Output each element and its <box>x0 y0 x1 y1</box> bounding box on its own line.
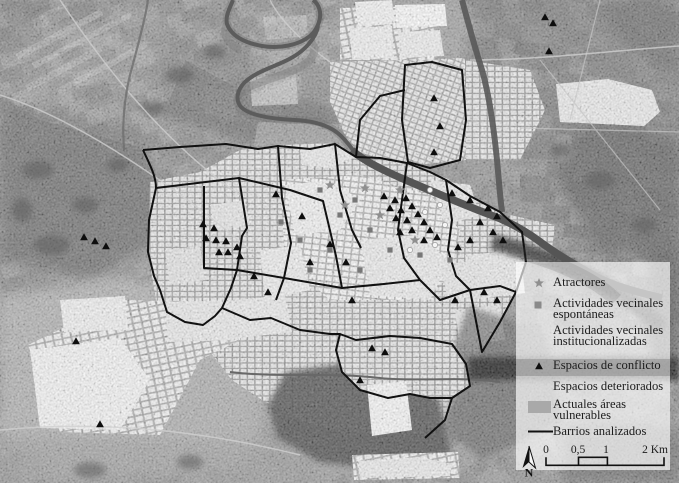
svg-text:0: 0 <box>543 444 549 456</box>
svg-text:espontáneas: espontáneas <box>553 307 614 321</box>
svg-text:1: 1 <box>603 444 609 456</box>
svg-text:vulnerables: vulnerables <box>553 408 611 422</box>
svg-text:0,5: 0,5 <box>571 444 586 456</box>
svg-text:institucionalizadas: institucionalizadas <box>553 334 647 348</box>
svg-text:Espacios deteriorados: Espacios deteriorados <box>553 379 663 393</box>
svg-text:N: N <box>525 466 534 480</box>
svg-text:2 Km: 2 Km <box>642 444 668 456</box>
svg-text:Espacios de conflicto: Espacios de conflicto <box>553 358 661 372</box>
svg-text:Barrios analizados: Barrios analizados <box>553 424 646 438</box>
svg-text:Atractores: Atractores <box>553 275 606 289</box>
